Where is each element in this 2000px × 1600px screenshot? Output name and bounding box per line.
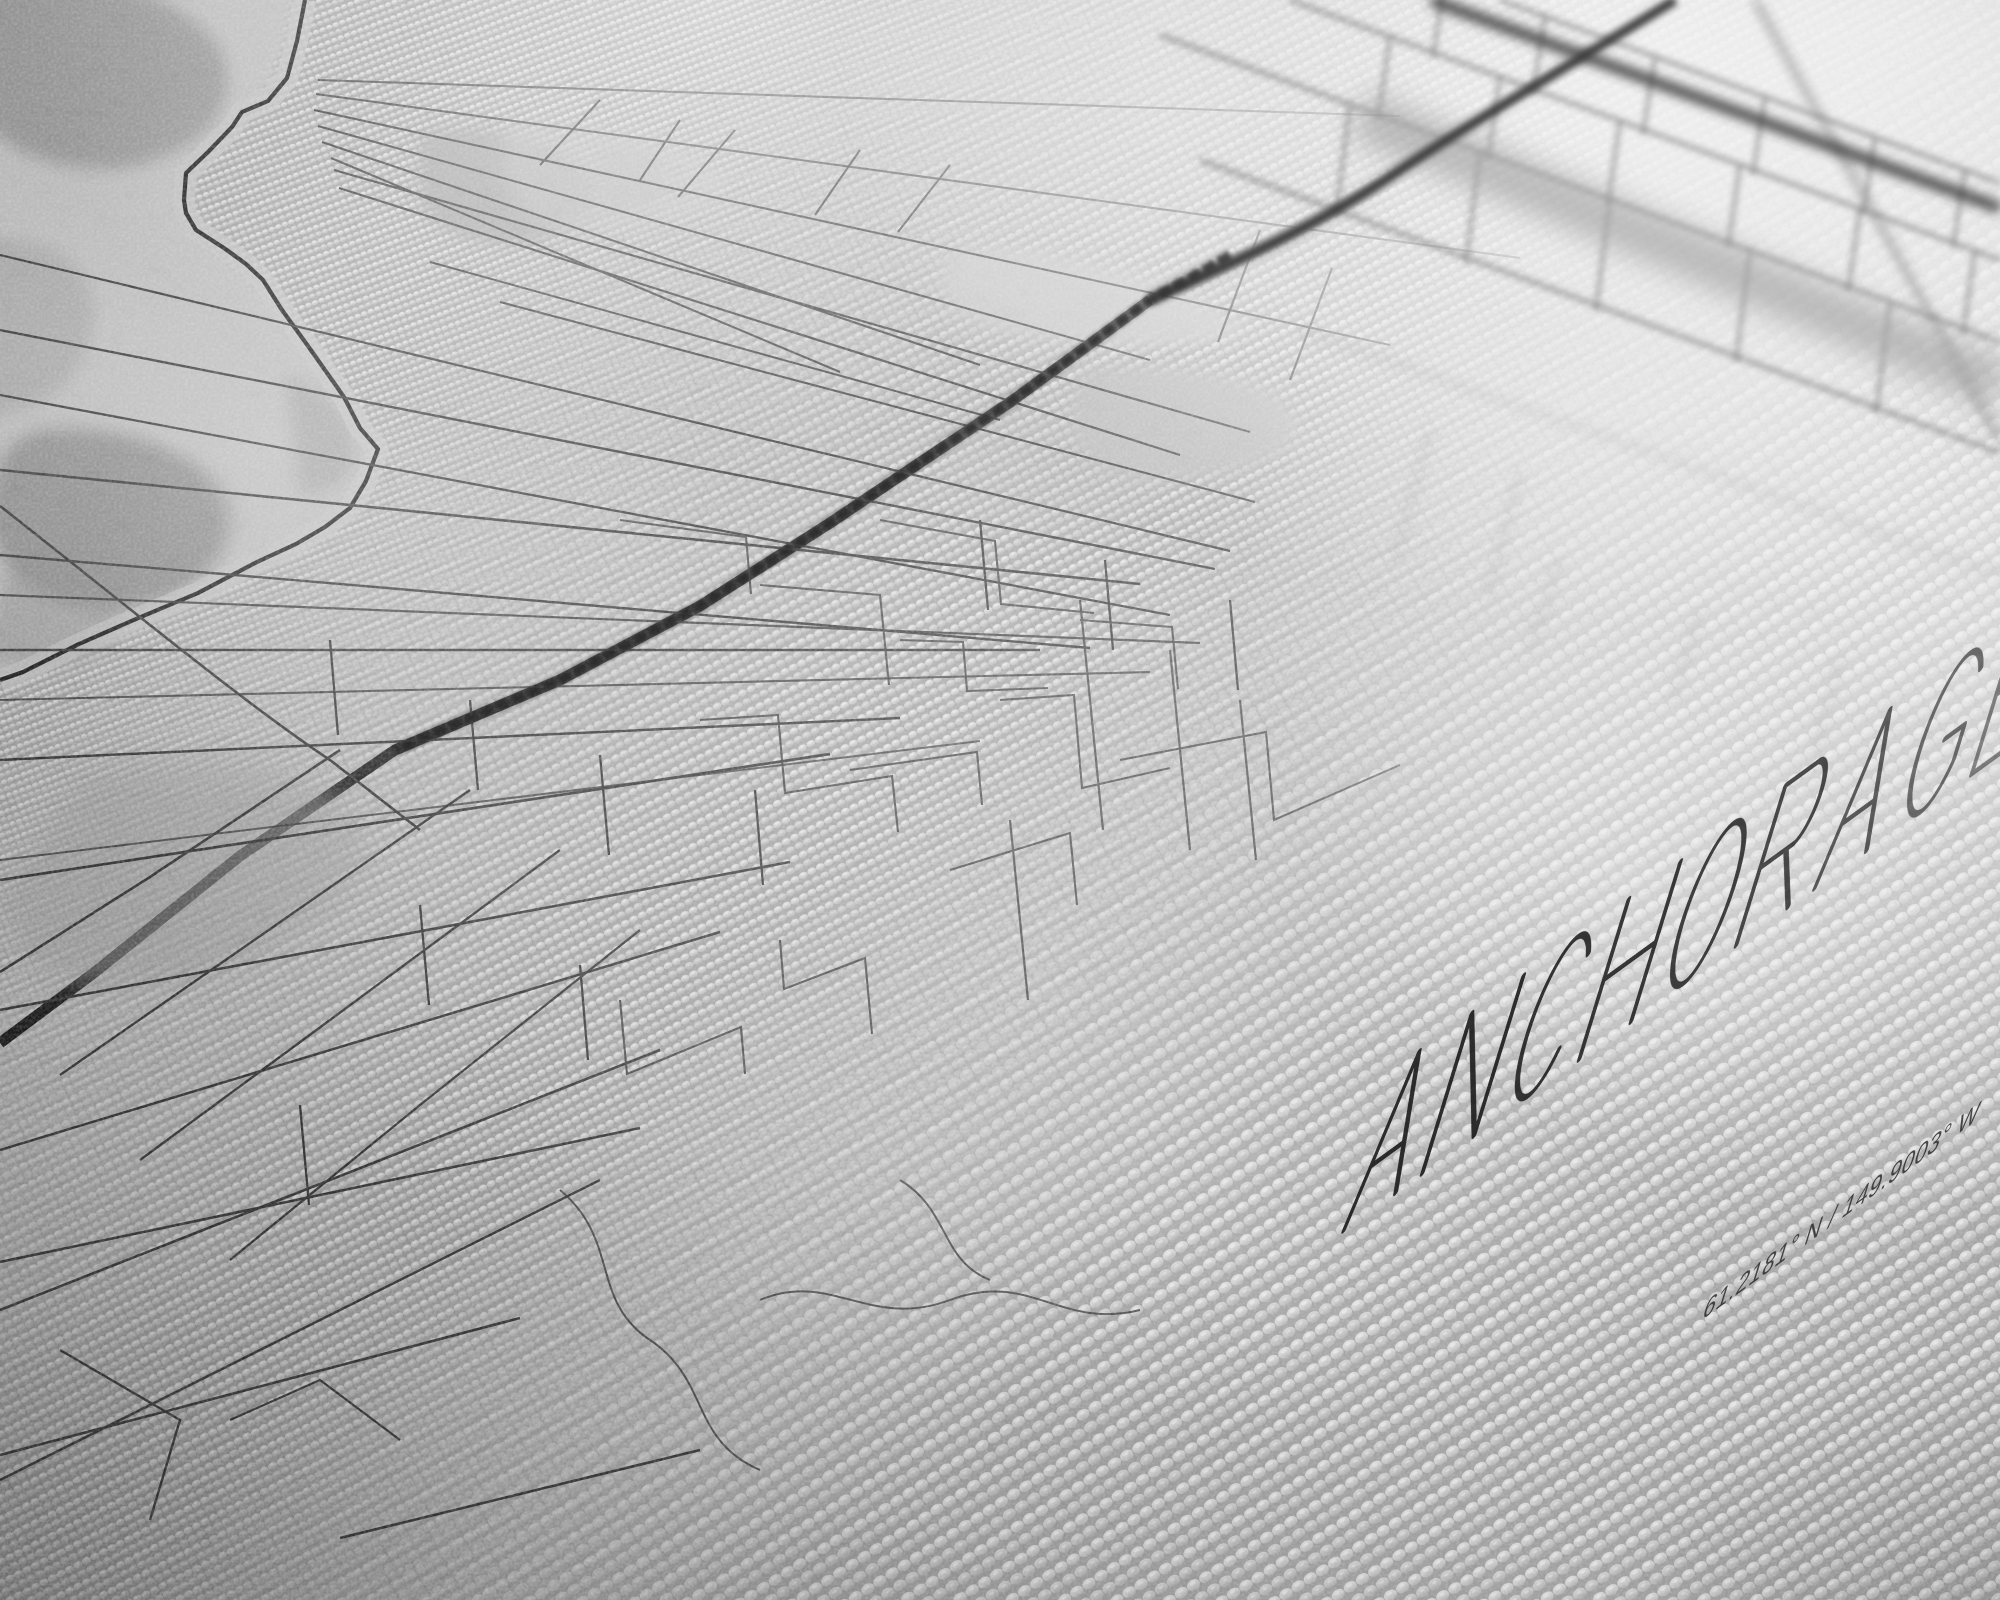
svg-text:61.2181° N / 149.9003° W: 61.2181° N / 149.9003° W <box>1699 1095 1985 1328</box>
